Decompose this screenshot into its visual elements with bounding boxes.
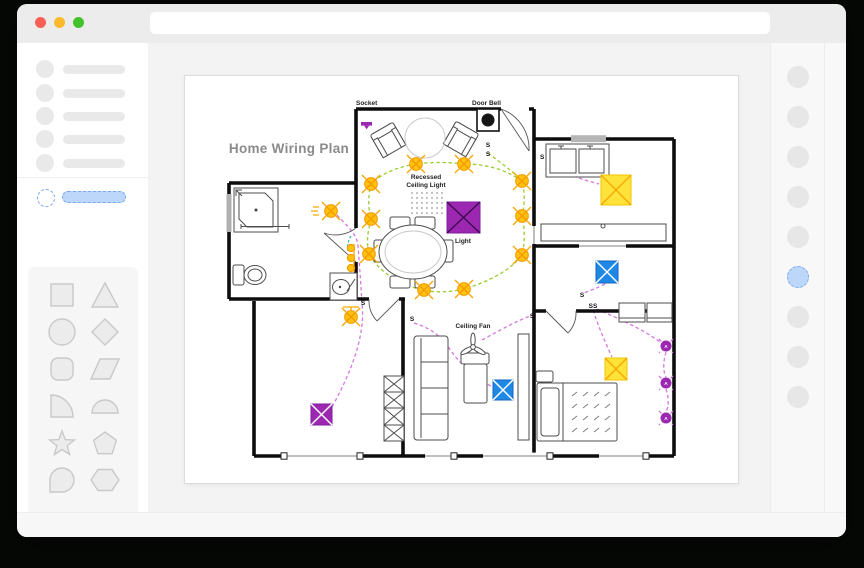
svg-text:A: A — [664, 381, 668, 387]
svg-text:S: S — [361, 300, 366, 307]
svg-text:A: A — [664, 344, 668, 350]
outlet-a[interactable]: A — [659, 411, 673, 425]
sidebar-item[interactable] — [17, 129, 148, 149]
socket-label: Socket — [356, 100, 378, 107]
kitchen-sink[interactable] — [546, 144, 609, 177]
shape-triangle[interactable] — [89, 279, 121, 311]
selected-item-bar — [62, 191, 126, 203]
item-label-bar — [63, 89, 125, 98]
recessed-light-symbol[interactable] — [407, 155, 425, 173]
purple-ceiling-light-small[interactable] — [311, 404, 332, 425]
sidebar-divider — [17, 177, 148, 178]
ceiling-fan-symbol[interactable] — [460, 333, 486, 356]
title-bar — [17, 4, 846, 44]
minimize-button[interactable] — [54, 17, 65, 28]
shape-hexagon[interactable] — [89, 464, 121, 496]
svg-text:S: S — [530, 313, 535, 320]
item-icon — [36, 107, 54, 125]
app-window: Home Wiring Plan — [17, 4, 846, 537]
recessed-light-symbol[interactable] — [513, 207, 531, 225]
door-bell-symbol[interactable] — [477, 109, 499, 131]
blue-fan-unit[interactable] — [596, 261, 618, 283]
tool-dot[interactable] — [787, 226, 809, 248]
sidebar-item-selected[interactable] — [17, 187, 148, 209]
item-label-bar — [63, 135, 125, 144]
svg-text:S: S — [540, 154, 545, 161]
wall-cabinets[interactable] — [619, 303, 672, 322]
sidebar-item[interactable] — [17, 106, 148, 126]
sidebar-item[interactable] — [17, 59, 148, 79]
svg-text:S: S — [580, 292, 585, 299]
shape-semicircle[interactable] — [89, 390, 121, 422]
drawing-page[interactable]: Home Wiring Plan — [184, 75, 739, 484]
item-icon — [36, 130, 54, 148]
shape-pentagon[interactable] — [89, 427, 121, 459]
tool-dot[interactable] — [787, 386, 809, 408]
round-table[interactable] — [405, 118, 445, 158]
tool-dot[interactable] — [787, 186, 809, 208]
tool-dot[interactable] — [787, 66, 809, 88]
svg-text:S: S — [486, 142, 491, 149]
right-toolbar — [770, 43, 846, 512]
left-sidebar — [17, 43, 149, 512]
item-label-bar — [63, 65, 125, 74]
toilet[interactable] — [233, 265, 266, 285]
dining-table[interactable] — [374, 217, 453, 288]
item-icon — [36, 84, 54, 102]
shape-palette — [28, 267, 138, 527]
tool-dot-active[interactable] — [787, 266, 809, 288]
socket-symbol[interactable] — [361, 122, 372, 129]
shape-square[interactable] — [46, 279, 78, 311]
bathroom-wall-lamp[interactable] — [311, 202, 340, 220]
item-label-bar — [63, 112, 125, 121]
shape-diamond[interactable] — [89, 316, 121, 348]
recessed-light-symbol[interactable] — [455, 155, 473, 173]
outlet-a[interactable]: A — [659, 339, 673, 353]
plan-title: Home Wiring Plan — [229, 141, 349, 156]
recessed-light-symbol[interactable] — [513, 246, 531, 264]
sidebar-item[interactable] — [17, 153, 148, 173]
tv-bench[interactable] — [518, 334, 529, 440]
sidebar-item[interactable] — [17, 83, 148, 103]
shape-rounded-square[interactable] — [46, 353, 78, 385]
search-input[interactable] — [150, 12, 770, 34]
item-label-bar — [63, 159, 125, 168]
bathroom-sink[interactable] — [330, 273, 357, 300]
recessed-lights[interactable] — [360, 155, 531, 299]
yellow-ceiling-light-bedroom[interactable] — [605, 358, 627, 380]
shape-quarter-circle[interactable] — [46, 390, 78, 422]
svg-text:S: S — [486, 151, 491, 158]
floor-plan: Home Wiring Plan — [185, 76, 738, 483]
tool-dot[interactable] — [787, 306, 809, 328]
recessed-label-2: Ceiling Light — [406, 182, 446, 189]
outlet-a[interactable]: A — [659, 376, 673, 390]
sofa[interactable] — [414, 336, 448, 440]
bed[interactable] — [536, 371, 617, 441]
armchair[interactable] — [443, 121, 479, 157]
shape-parallelogram[interactable] — [89, 353, 121, 385]
recessed-light-symbol[interactable] — [513, 172, 531, 190]
item-icon — [36, 154, 54, 172]
ceiling-fan-label: Ceiling Fan — [455, 323, 490, 330]
recessed-light-symbol[interactable] — [360, 245, 378, 263]
door-bell-label: Door Bell — [472, 100, 501, 107]
svg-text:A: A — [664, 416, 668, 422]
window-footer — [17, 512, 846, 537]
svg-text:S: S — [410, 316, 415, 323]
blue-fan-unit-living[interactable] — [493, 380, 513, 400]
recessed-light-fixture[interactable] — [409, 190, 443, 214]
light-label: Light — [455, 238, 472, 245]
item-icon — [36, 60, 54, 78]
tool-dot[interactable] — [787, 346, 809, 368]
recessed-light-symbol[interactable] — [415, 281, 433, 299]
lounge-chair[interactable] — [461, 353, 489, 403]
close-button[interactable] — [35, 17, 46, 28]
tool-dot[interactable] — [787, 106, 809, 128]
shape-star[interactable] — [46, 427, 78, 459]
maximize-button[interactable] — [73, 17, 84, 28]
recessed-label-1: Recessed — [411, 174, 441, 181]
shape-circle[interactable] — [46, 316, 78, 348]
shelf-unit[interactable] — [384, 376, 404, 441]
svg-text:SS: SS — [589, 303, 598, 310]
selected-item-icon — [37, 189, 55, 207]
shape-teardrop[interactable] — [46, 464, 78, 496]
armchair[interactable] — [370, 122, 406, 158]
purple-ceiling-light[interactable] — [447, 202, 480, 233]
recessed-light-symbol[interactable] — [455, 280, 473, 298]
yellow-ceiling-light-kitchen[interactable] — [601, 175, 631, 205]
socket-strip[interactable] — [347, 244, 354, 272]
kitchen-counter[interactable] — [541, 224, 666, 241]
tool-dot[interactable] — [787, 146, 809, 168]
hall-wall-lamp[interactable] — [342, 307, 360, 326]
recessed-light-symbol[interactable] — [362, 175, 380, 193]
recessed-light-symbol[interactable] — [362, 210, 380, 228]
